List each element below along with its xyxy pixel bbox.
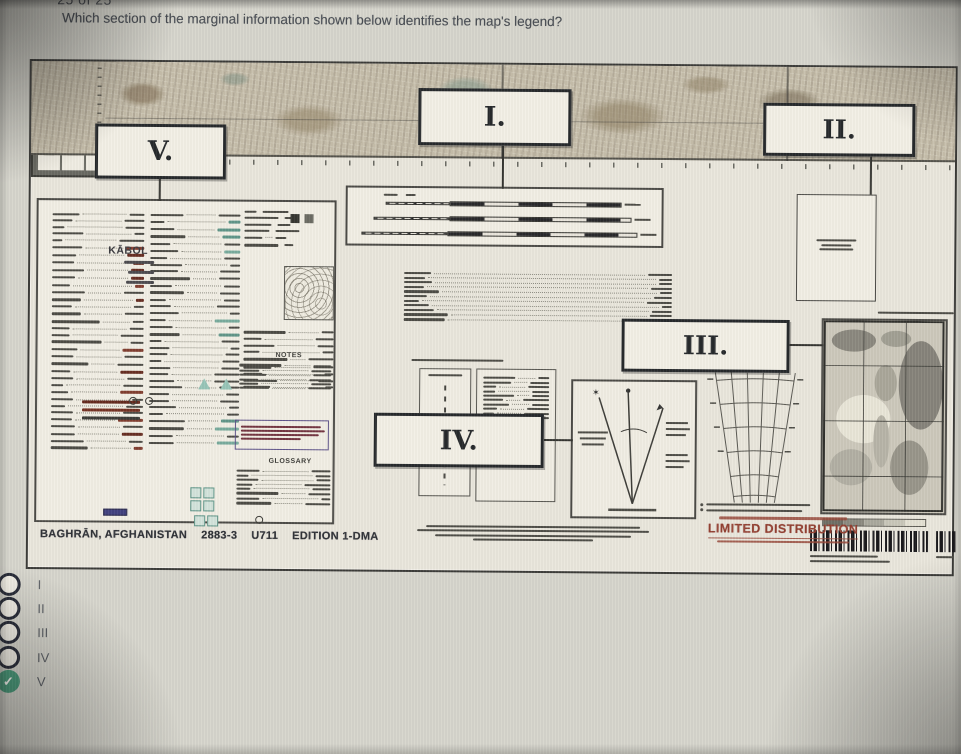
radio-option-iii[interactable]: III <box>0 621 50 646</box>
vegetation-symbol-pair <box>194 515 218 526</box>
section-label-ii: II. <box>763 103 915 157</box>
radio-button[interactable] <box>0 572 21 595</box>
connector-v <box>159 179 161 201</box>
declination-arrows: ✶ <box>572 381 694 516</box>
convergence-fan-diagram <box>704 366 807 509</box>
elevation-inset-map <box>822 320 944 512</box>
section-label-v: V. <box>95 124 226 180</box>
connector-i <box>502 146 504 189</box>
built-up-area-symbol <box>290 214 299 223</box>
contour-sample-thumbnail <box>284 266 334 320</box>
series-number: U711 <box>251 530 278 542</box>
barcode-text <box>810 555 878 558</box>
legend-notes-heading: NOTES <box>275 352 302 359</box>
exhibit-figure: V. I. II. III. IV. KĀBOL <box>26 59 958 576</box>
scale-caption <box>384 194 398 196</box>
radio-option-iv[interactable]: IV <box>0 645 49 670</box>
limited-distribution-text: LIMITED DISTRIBUTION <box>668 521 898 537</box>
distribution-notice: LIMITED DISTRIBUTION <box>668 514 898 546</box>
radio-option-i[interactable]: I <box>0 572 50 597</box>
legend-column-2 <box>149 209 241 449</box>
red-caption-bar <box>717 541 849 544</box>
section-label-iii: III. <box>621 319 789 373</box>
mine-symbol-triangle <box>198 378 210 389</box>
scale-bars-panel <box>345 185 663 247</box>
fine-print-block <box>408 522 658 544</box>
radio-button[interactable] <box>0 621 20 644</box>
road-symbol-red <box>82 408 140 411</box>
index-to-boundaries-box <box>796 194 877 302</box>
barcode-text <box>810 560 890 563</box>
glossary-rows <box>236 468 330 508</box>
sheet-number: 2883-3 <box>201 529 237 541</box>
option-label: III <box>37 626 48 641</box>
quiz-page: 25 of 25 Which section of the marginal i… <box>0 0 961 754</box>
scale-bar-meters <box>386 201 642 208</box>
option-label: IV <box>37 650 49 665</box>
airfield-symbol <box>103 509 127 516</box>
built-up-area-symbol <box>304 214 313 223</box>
section-label-iv: IV. <box>374 413 544 468</box>
credit-notes <box>404 270 672 326</box>
circle-symbol <box>145 397 153 405</box>
legend-placename-bar <box>124 261 154 264</box>
circle-symbol <box>129 397 137 405</box>
option-label: V <box>37 674 46 689</box>
scale-caption <box>406 194 416 196</box>
scale-bar-miles <box>361 231 657 238</box>
legend-panel: KĀBOL NOTES GLOSSARY <box>34 198 337 524</box>
declination-diagram: ✶ <box>570 379 697 519</box>
legend-warning-note <box>235 420 329 451</box>
mine-symbol-triangle <box>220 379 232 390</box>
option-label: I <box>38 577 42 592</box>
boundary-caption <box>411 359 503 362</box>
progress-counter: 25 of 25 <box>57 0 112 8</box>
radio-button-selected[interactable]: ✓ <box>0 670 20 693</box>
legend-glossary-heading: GLOSSARY <box>269 458 312 465</box>
notes-paragraph <box>239 362 331 392</box>
legend-column-3-top <box>244 206 286 251</box>
legend-placename-bar <box>126 281 154 284</box>
connector-ii <box>870 157 872 195</box>
radio-option-v[interactable]: ✓ V <box>0 669 49 694</box>
connector-iii <box>790 344 824 346</box>
edition-note: EDITION 1-DMA <box>292 530 378 543</box>
road-symbol-dark <box>82 416 140 419</box>
legend-placename-bar <box>128 271 154 274</box>
answer-options: I II III IV ✓ V <box>0 572 50 694</box>
mosque-symbol <box>255 516 263 524</box>
question-text: Which section of the marginal informatio… <box>62 10 912 32</box>
elevation-guide-inset <box>820 318 948 515</box>
small-barcode <box>936 531 956 552</box>
section-label-i: I. <box>418 88 571 146</box>
connector-iv <box>544 439 573 441</box>
svg-text:✶: ✶ <box>592 387 600 397</box>
vegetation-symbol-grid <box>190 487 214 511</box>
radio-button[interactable] <box>0 597 21 620</box>
red-caption-bar <box>708 537 858 540</box>
fan-captions <box>700 500 822 514</box>
red-caption-bar <box>719 516 847 520</box>
radio-button[interactable] <box>0 646 20 669</box>
adjoining-sheets-caption <box>878 312 954 315</box>
option-label: II <box>37 601 44 616</box>
sheet-identification: BAGHRĀN, AFGHANISTAN 2883-3 U711 EDITION… <box>40 528 340 542</box>
scale-bar-yards <box>374 216 652 223</box>
legend-placename-kabol: KĀBOL <box>108 245 148 257</box>
sheet-name: BAGHRĀN, AFGHANISTAN <box>40 528 187 541</box>
radio-option-ii[interactable]: II <box>0 596 50 621</box>
barcode-text <box>936 556 954 558</box>
